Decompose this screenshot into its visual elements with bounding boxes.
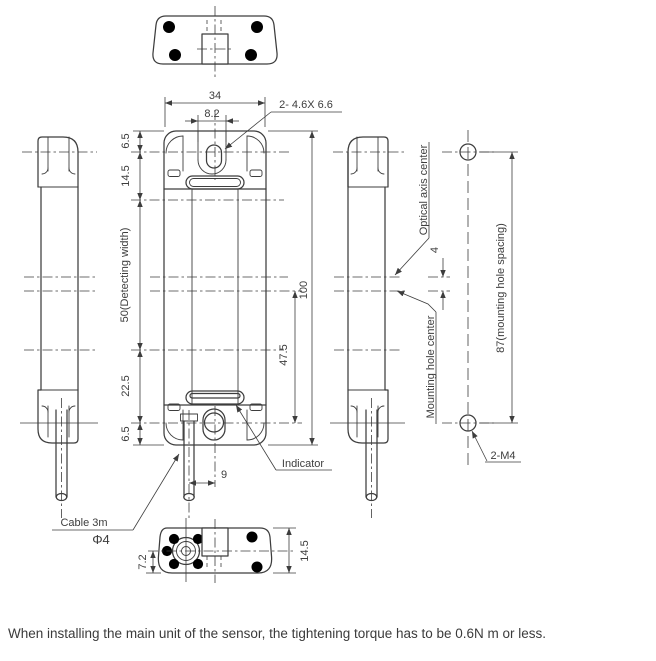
indicator-lens [190,394,240,399]
screw-icon [245,49,257,61]
mounting-slot-top [207,145,222,168]
mounting-screw-hole [205,413,224,432]
screw-icon [169,534,179,544]
screw-icon [169,49,181,61]
screw-icon [169,559,179,569]
dim-label-47-5: 47.5 [278,344,290,365]
right-side-view [348,137,388,501]
callout-hole-spec: 2-M4 [490,450,515,462]
dim-label-14-5-bottom: 14.5 [299,540,311,561]
left-side-cap [38,137,78,187]
callout-optical-axis: Optical axis center [418,144,430,235]
dim-label-14-5: 14.5 [120,165,132,186]
callout-cable-diameter: Φ4 [92,532,110,547]
dim-label-87: 87(mounting hole spacing) [495,223,507,353]
dim-label-7-2: 7.2 [137,554,149,569]
drawing-canvas: 34 8.2 2- 4.6X 6.6 6.5 14.5 50(Detecting… [0,0,656,661]
dim-label-9: 9 [221,469,227,481]
dim-label-4: 4 [429,247,441,253]
callout-mounting-hole-center: Mounting hole center [425,315,437,418]
callout-indicator: Indicator [282,458,325,470]
caption-text: When installing the main unit of the sen… [8,626,652,641]
left-side-bottom-cap [38,390,78,443]
right-side-bottom-cap [348,390,388,443]
dim-label-34: 34 [209,90,221,102]
screw-icon [193,559,203,569]
dim-label-22-5: 22.5 [120,375,132,396]
screw-icon [251,561,262,572]
callout-cable: Cable 3m [60,517,107,529]
screw-icon [246,531,257,542]
dim-14-5-bottom [273,528,296,573]
drawing-labels: 34 8.2 2- 4.6X 6.6 6.5 14.5 50(Detecting… [60,90,515,570]
dim-label-6-5-top: 6.5 [120,133,132,148]
sensor-dimension-drawing: 34 8.2 2- 4.6X 6.6 6.5 14.5 50(Detecting… [0,0,656,661]
dim-label-detecting-width: 50(Detecting width) [119,228,131,323]
callout-slot-spec: 2- 4.6X 6.6 [279,99,333,111]
screw-icon [163,21,175,33]
right-side-cap [348,137,388,187]
dim-label-8-2: 8.2 [204,108,219,120]
dim-label-100: 100 [298,281,310,299]
left-side-view [38,137,78,501]
dim-100 [268,131,318,445]
center-lines [20,6,494,583]
dim-left-chain [133,131,164,445]
optical-window [186,176,244,189]
dim-label-6-5-bottom: 6.5 [120,426,132,441]
screw-icon [251,21,263,33]
mounting-slot-bottom [203,409,225,440]
